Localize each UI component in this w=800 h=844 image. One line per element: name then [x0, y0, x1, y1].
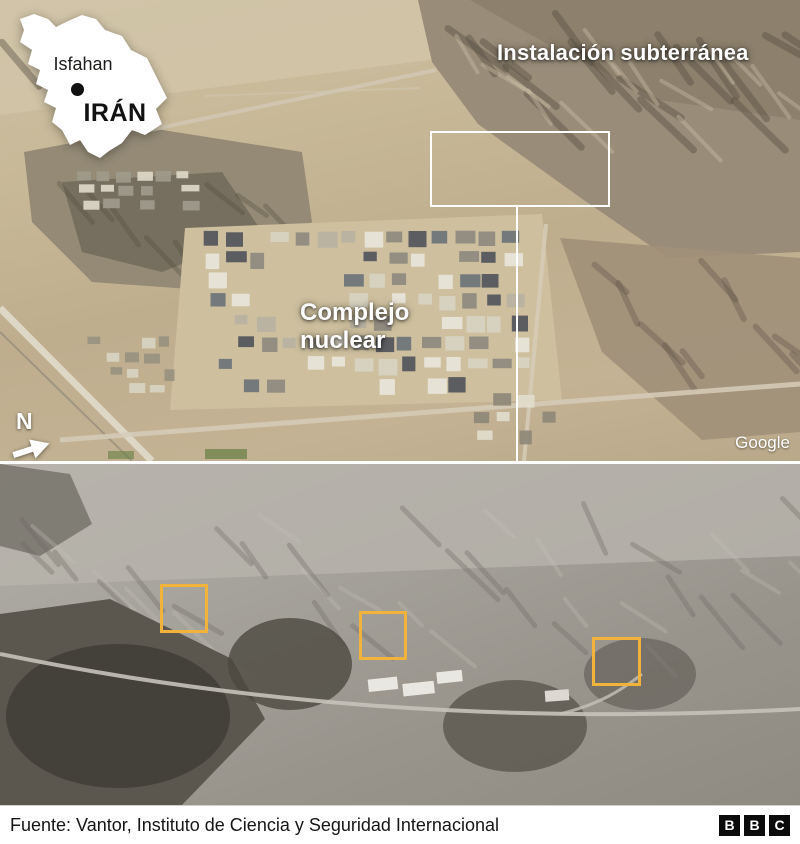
- locator-country-label: IRÁN: [80, 99, 150, 128]
- nuclear-complex-label-line2: nuclear: [300, 327, 409, 355]
- tunnel-entrance-box-3: [592, 637, 641, 686]
- underground-facility-label-main: Instalación subterránea: [497, 40, 749, 66]
- bbc-logo-block-c: C: [769, 815, 790, 836]
- news-graphic: Isfahan IRÁN Instalación subterránea Com…: [0, 0, 800, 844]
- source-credit: Fuente: Vantor, Instituto de Ciencia y S…: [10, 815, 499, 836]
- map-credit: Google: [735, 433, 790, 453]
- locator-city-dot: [71, 83, 84, 96]
- locator-city-label: Isfahan: [38, 54, 128, 75]
- locator-map: Isfahan IRÁN: [4, 6, 170, 158]
- north-letter: N: [16, 408, 33, 435]
- nuclear-complex-label-line1: Complejo: [300, 299, 409, 327]
- bbc-logo-block-b2: B: [744, 815, 765, 836]
- tunnel-entrance-box-2: [359, 611, 407, 660]
- nuclear-complex-label: Complejo nuclear: [300, 299, 409, 355]
- highlight-connector-line: [516, 206, 518, 461]
- tunnel-entrance-box-1: [160, 584, 208, 633]
- north-arrow: N: [10, 408, 58, 461]
- footer: Fuente: Vantor, Instituto de Ciencia y S…: [0, 805, 800, 844]
- bbc-logo-block-b1: B: [719, 815, 740, 836]
- satellite-view-main: Isfahan IRÁN Instalación subterránea Com…: [0, 0, 800, 461]
- bbc-logo: B B C: [719, 815, 790, 836]
- north-arrow-icon: [10, 434, 54, 461]
- iran-map-shape: [4, 6, 170, 158]
- highlight-rectangle: [430, 131, 610, 207]
